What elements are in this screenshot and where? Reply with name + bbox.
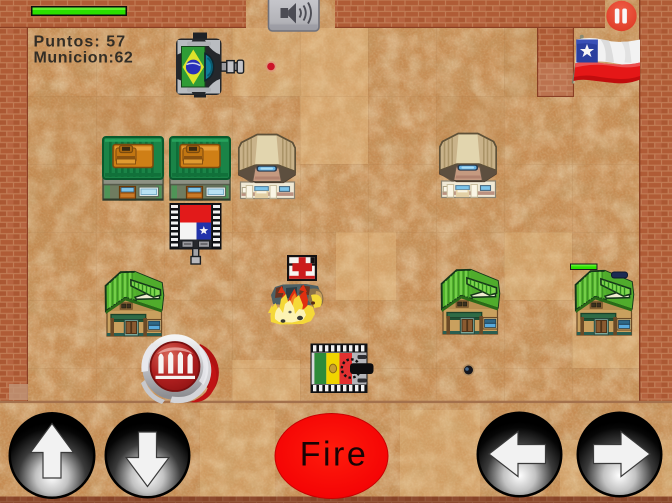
svg-text:Puntos: 57: Puntos: 57 (34, 34, 127, 51)
svg-text:Fire: Fire (300, 436, 369, 474)
svg-text:Municion:62: Municion:62 (34, 50, 134, 67)
